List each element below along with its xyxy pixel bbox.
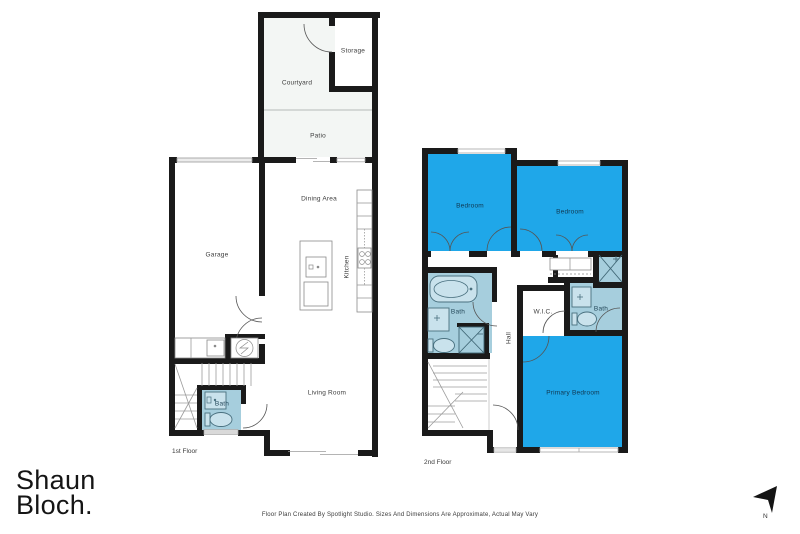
room-label-bath1: Bath [215, 401, 229, 408]
toilet-tank [572, 313, 577, 325]
bath1-threshold [204, 430, 238, 435]
toilet-bowl [210, 413, 232, 427]
floor2-stairs [428, 359, 489, 430]
room-label-courtyard: Courtyard [282, 80, 312, 87]
bath-left-sink [428, 308, 449, 331]
floor2-name: 2nd Floor [424, 459, 451, 466]
room-label-wic: W.I.C. [534, 309, 553, 316]
room-label-bedroom1: Bedroom [456, 203, 484, 210]
bedroom2-window [558, 161, 600, 165]
room-label-garage: Garage [206, 252, 229, 259]
brand-logo: Shaun Bloch. [16, 468, 96, 518]
floor2-plan [415, 140, 635, 460]
island-cabinet [304, 282, 328, 306]
kitchen-fixtures [300, 190, 372, 312]
closet-shelf [550, 258, 591, 270]
laundry-fixtures [175, 338, 258, 358]
room-label-living: Living Room [308, 390, 346, 397]
room-label-storage: Storage [341, 48, 365, 55]
floor1-name: 1st Floor [172, 448, 197, 455]
room-label-bedroom2: Bedroom [556, 209, 584, 216]
toilet-bowl [578, 312, 597, 326]
room-label-hall: Hall [506, 332, 513, 344]
toilet-bowl [434, 339, 455, 353]
bedroom1-window [458, 149, 505, 153]
toilet-tank [205, 413, 210, 426]
room-label-bath-right: Bath [594, 306, 608, 313]
floor-plan-page: Storage Courtyard Patio Dining Area Gara… [0, 0, 800, 534]
room-label-dining: Dining Area [301, 196, 337, 203]
laundry-sink [207, 340, 224, 356]
disclaimer-text: Floor Plan Created By Spotlight Studio. … [0, 512, 800, 518]
room-label-kitchen: Kitchen [344, 255, 351, 278]
room-label-bath-left: Bath [451, 309, 465, 316]
dining-window [337, 158, 365, 162]
north-label: N [763, 513, 768, 520]
hall-threshold [494, 448, 516, 452]
room-label-patio: Patio [310, 133, 326, 140]
hall-door-arc [493, 405, 518, 430]
stove [358, 248, 371, 268]
floor1-plan [160, 5, 390, 465]
bath1-door-arc [243, 404, 267, 428]
garage-door [177, 158, 252, 162]
toilet-tank [428, 339, 433, 352]
room-label-primary: Primary Bedroom [546, 390, 600, 397]
north-arrow-icon [748, 483, 784, 517]
